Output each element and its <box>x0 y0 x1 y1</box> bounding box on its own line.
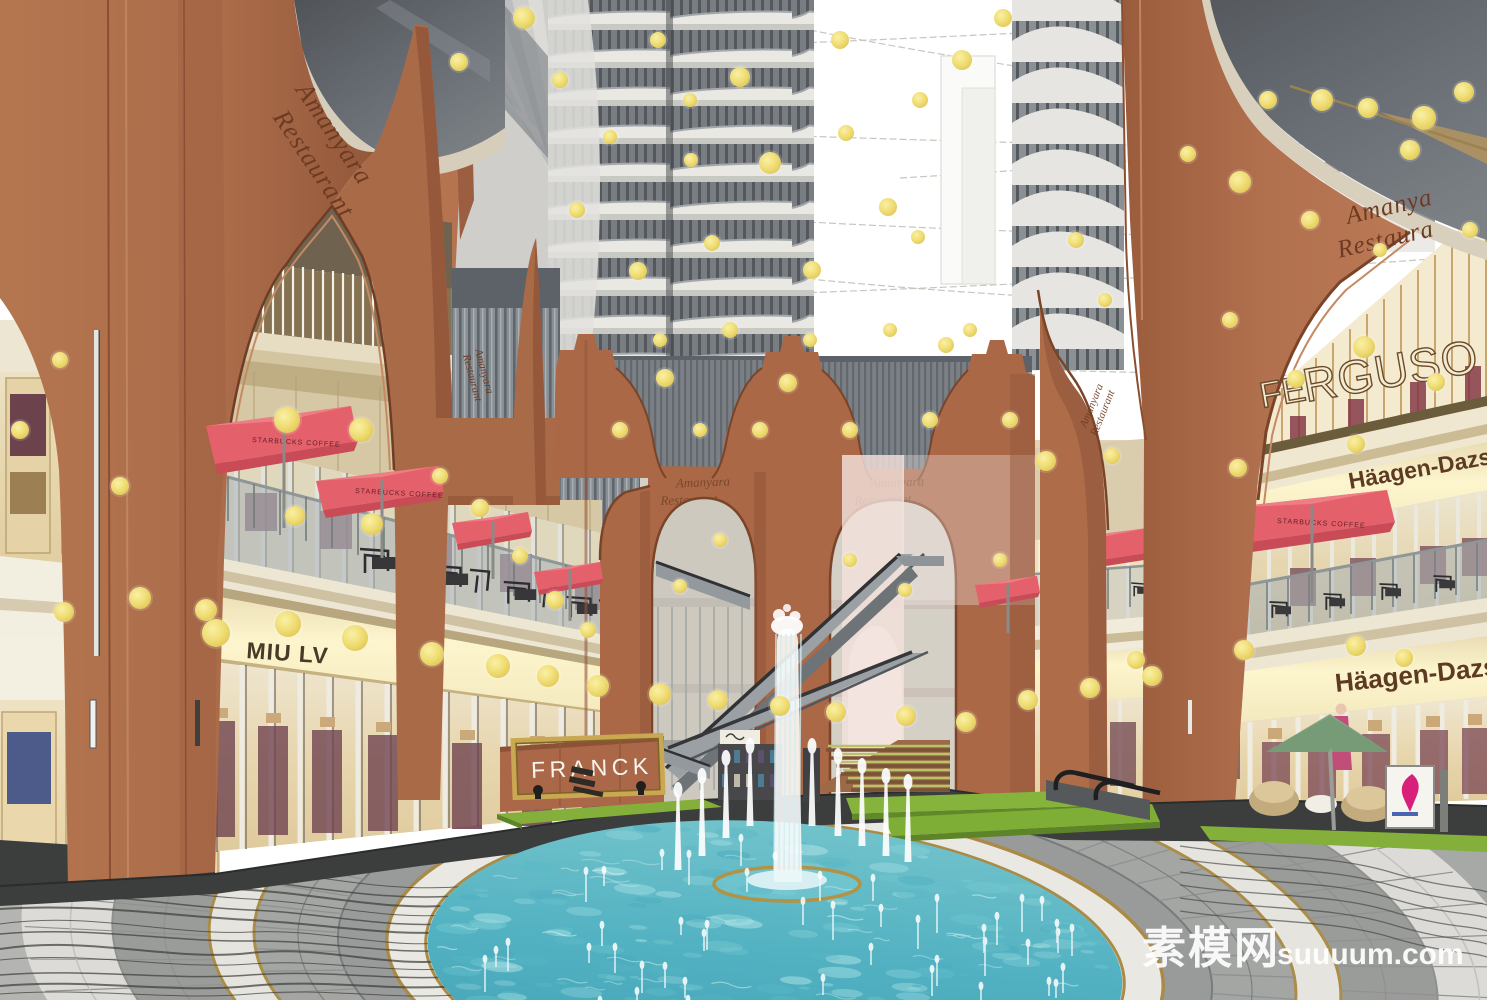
svg-text:FRANCK: FRANCK <box>531 753 653 783</box>
svg-text:素模网: 素模网 <box>1142 924 1280 973</box>
svg-text:Amanyara: Amanyara <box>675 474 731 491</box>
svg-text:suuuum.com: suuuum.com <box>1277 938 1464 971</box>
